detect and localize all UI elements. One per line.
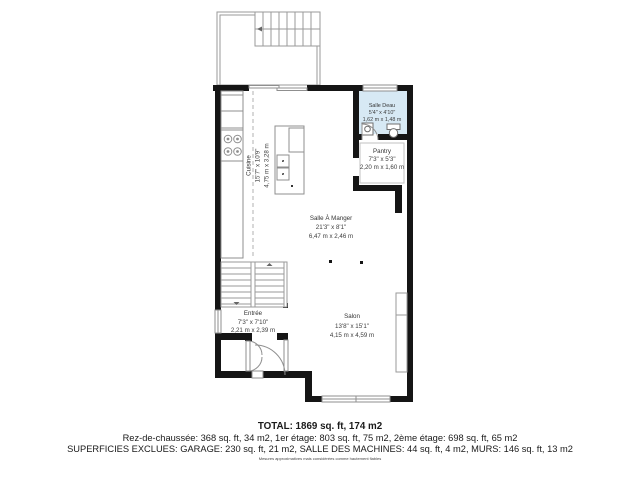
builtin-unit xyxy=(396,293,407,372)
toilet-icon xyxy=(389,129,397,138)
kitchen-island xyxy=(275,126,304,194)
sliding-door-panel xyxy=(277,88,307,91)
floor-plan-canvas xyxy=(0,0,640,420)
total-area: TOTAL: 1869 sq. ft, 174 m2 xyxy=(0,421,640,433)
area-summary: TOTAL: 1869 sq. ft, 174 m2 Rez-de-chauss… xyxy=(0,421,640,461)
sliding-door-panel xyxy=(249,86,279,89)
deck-staircase xyxy=(255,12,320,46)
kitchen-counter xyxy=(221,91,253,258)
excluded-areas: SUPERFICIES EXCLUES: GARAGE: 230 sq. ft,… xyxy=(0,444,640,455)
closet-door xyxy=(246,341,250,371)
pantry-shelves xyxy=(360,143,404,183)
entry-door-threshold xyxy=(252,371,263,378)
floor-areas: Rez-de-chaussée: 368 sq. ft, 34 m2, 1er … xyxy=(0,433,640,444)
entry-area xyxy=(246,340,288,375)
vestibule-partition-wall xyxy=(284,340,288,371)
staircase-main xyxy=(221,262,287,307)
disclaimer-text: Mesures approximatives mais considérées … xyxy=(0,456,640,461)
